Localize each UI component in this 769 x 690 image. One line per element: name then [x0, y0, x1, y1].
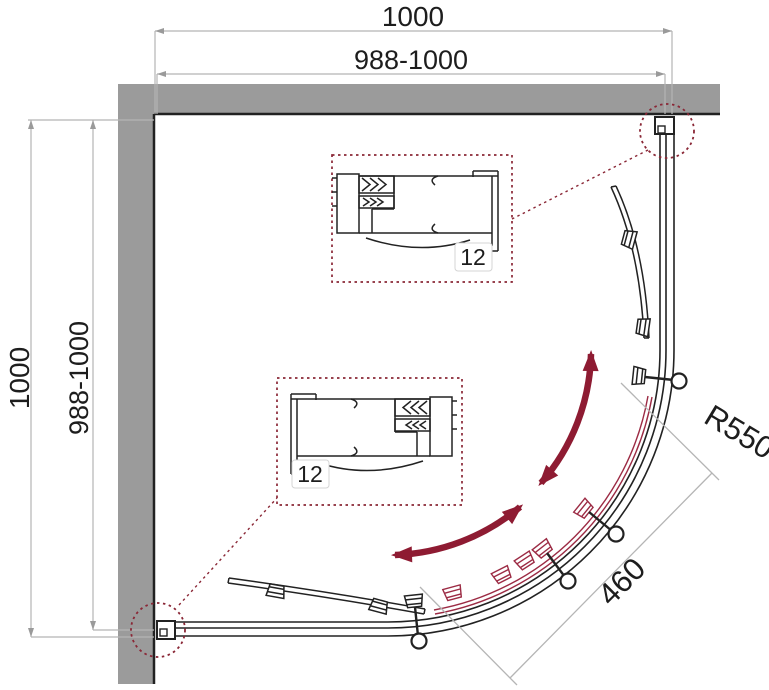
detail-callout-a: 12	[332, 104, 694, 282]
roller-wheel	[609, 527, 624, 542]
dimension-top-adjust-label: 988-1000	[354, 45, 468, 75]
diagram-stage: 1000 988-1000 1000 988-1000	[0, 0, 769, 690]
wall-profile-top	[655, 117, 674, 134]
door-panel-bottom	[228, 578, 425, 614]
dimension-entry-label: 460	[591, 551, 652, 612]
profile-section-a	[332, 171, 498, 251]
door-rails	[176, 117, 674, 636]
detail-a-label: 12	[460, 244, 486, 270]
slide-arrow-upper	[541, 354, 591, 483]
dimension-left-depth-label: 1000	[4, 347, 35, 409]
wall-profile-bottom	[157, 621, 175, 639]
slide-arrow-lower	[395, 507, 520, 555]
dimension-radius-label: R550	[699, 398, 769, 466]
roller-wheel	[412, 634, 427, 649]
callout-leader-bottom	[179, 498, 277, 605]
roller-wheel	[561, 574, 576, 589]
roller-wheel	[672, 374, 687, 389]
dimension-left-adjust-label: 988-1000	[64, 321, 94, 435]
slide-direction-arrows	[395, 354, 591, 555]
detail-b-label: 12	[297, 461, 323, 487]
top-wall	[118, 84, 720, 114]
left-wall	[118, 84, 154, 684]
dimension-top-width-label: 1000	[382, 1, 444, 32]
detail-callout-b: 12	[131, 378, 462, 657]
door-panel-top	[611, 186, 650, 338]
shower-enclosure-diagram: 1000 988-1000 1000 988-1000	[0, 0, 769, 690]
enclosure-plan	[157, 117, 687, 649]
callout-leader-top	[512, 150, 648, 219]
